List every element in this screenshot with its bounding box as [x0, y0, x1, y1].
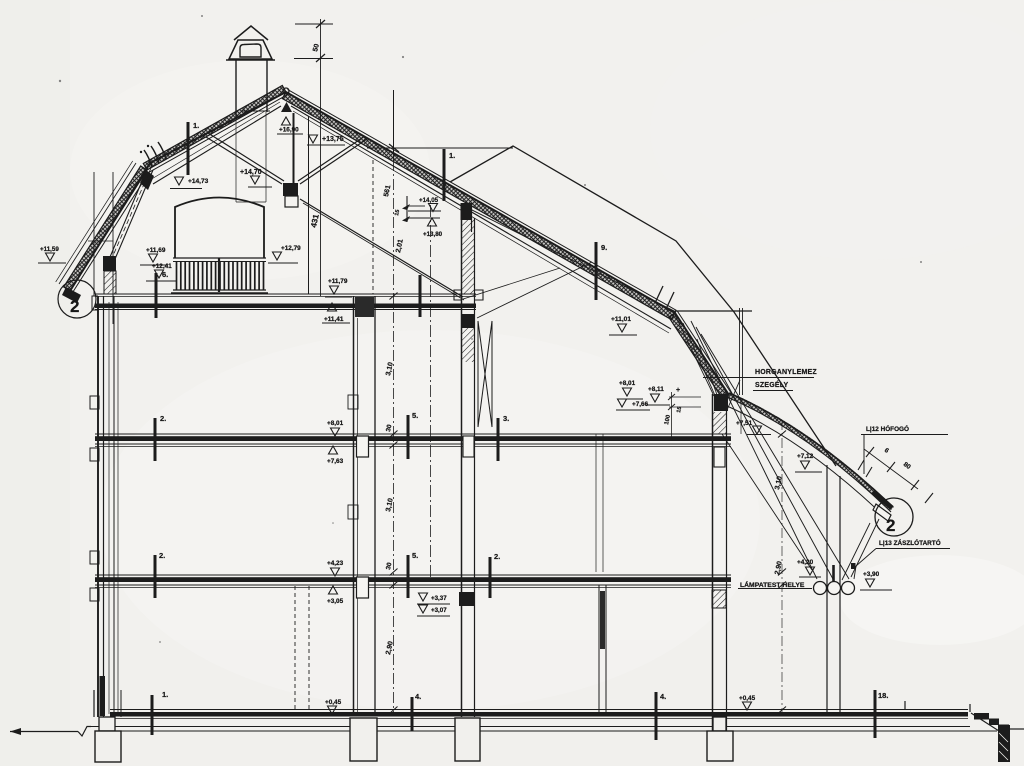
svg-text:+14,73: +14,73: [188, 178, 209, 185]
svg-text:L|12 HÓFOGÓ: L|12 HÓFOGÓ: [866, 424, 909, 433]
svg-text:2.: 2.: [494, 552, 500, 561]
svg-text:+7,51: +7,51: [736, 420, 753, 427]
svg-text:2: 2: [70, 297, 79, 316]
svg-text:+3,05: +3,05: [327, 598, 344, 605]
svg-text:3.: 3.: [503, 414, 509, 423]
svg-text:+16,90: +16,90: [279, 127, 299, 134]
svg-text:+3,90: +3,90: [863, 571, 880, 578]
svg-text:+12,41: +12,41: [152, 263, 172, 270]
svg-text:+3,37: +3,37: [431, 595, 447, 602]
svg-text:+0,45: +0,45: [325, 699, 342, 706]
svg-text:1.: 1.: [449, 151, 455, 160]
svg-text:1.: 1.: [193, 121, 199, 130]
svg-text:+4,20: +4,20: [797, 559, 814, 566]
svg-text:+13,75: +13,75: [322, 136, 344, 143]
svg-text:+11,59: +11,59: [40, 246, 59, 253]
svg-text:+8,01: +8,01: [619, 380, 636, 387]
svg-text:+: +: [676, 387, 680, 394]
svg-text:2.: 2.: [159, 551, 165, 560]
svg-text:1.: 1.: [162, 690, 168, 699]
svg-text:+3,07: +3,07: [431, 607, 447, 614]
svg-text:+13,80: +13,80: [423, 231, 443, 238]
svg-text:+7,12: +7,12: [797, 453, 814, 460]
svg-text:+11,41: +11,41: [324, 316, 344, 323]
svg-text:4.: 4.: [660, 692, 666, 701]
svg-text:L|13 ZÁSZLÓTARTÓ: L|13 ZÁSZLÓTARTÓ: [879, 538, 941, 547]
svg-text:+8,01: +8,01: [327, 420, 344, 427]
svg-text:9.: 9.: [601, 243, 607, 252]
svg-text:+7,66: +7,66: [632, 401, 649, 408]
svg-text:5.: 5.: [412, 411, 418, 420]
svg-text:+8,11: +8,11: [648, 386, 664, 393]
svg-text:SZEGÉLY: SZEGÉLY: [755, 380, 789, 389]
svg-text:18.: 18.: [878, 691, 888, 700]
svg-text:15: 15: [394, 209, 401, 216]
svg-text:HORGANYLEMEZ: HORGANYLEMEZ: [755, 369, 817, 376]
svg-text:+11,69: +11,69: [146, 247, 166, 254]
svg-text:+0,45: +0,45: [739, 695, 756, 702]
svg-text:+7,63: +7,63: [327, 458, 344, 465]
svg-text:2: 2: [886, 516, 895, 535]
svg-text:+14,70: +14,70: [240, 169, 262, 176]
svg-text:LÁMPATEST HELYE: LÁMPATEST HELYE: [740, 580, 805, 589]
svg-text:2.: 2.: [160, 414, 166, 423]
svg-text:15: 15: [676, 406, 683, 413]
svg-text:+4,23: +4,23: [327, 560, 344, 567]
svg-text:+11,79: +11,79: [328, 278, 348, 285]
svg-text:5.: 5.: [412, 551, 418, 560]
svg-text:4.: 4.: [415, 692, 421, 701]
svg-text:+12,79: +12,79: [281, 245, 301, 252]
svg-text:+11,01: +11,01: [611, 316, 631, 323]
